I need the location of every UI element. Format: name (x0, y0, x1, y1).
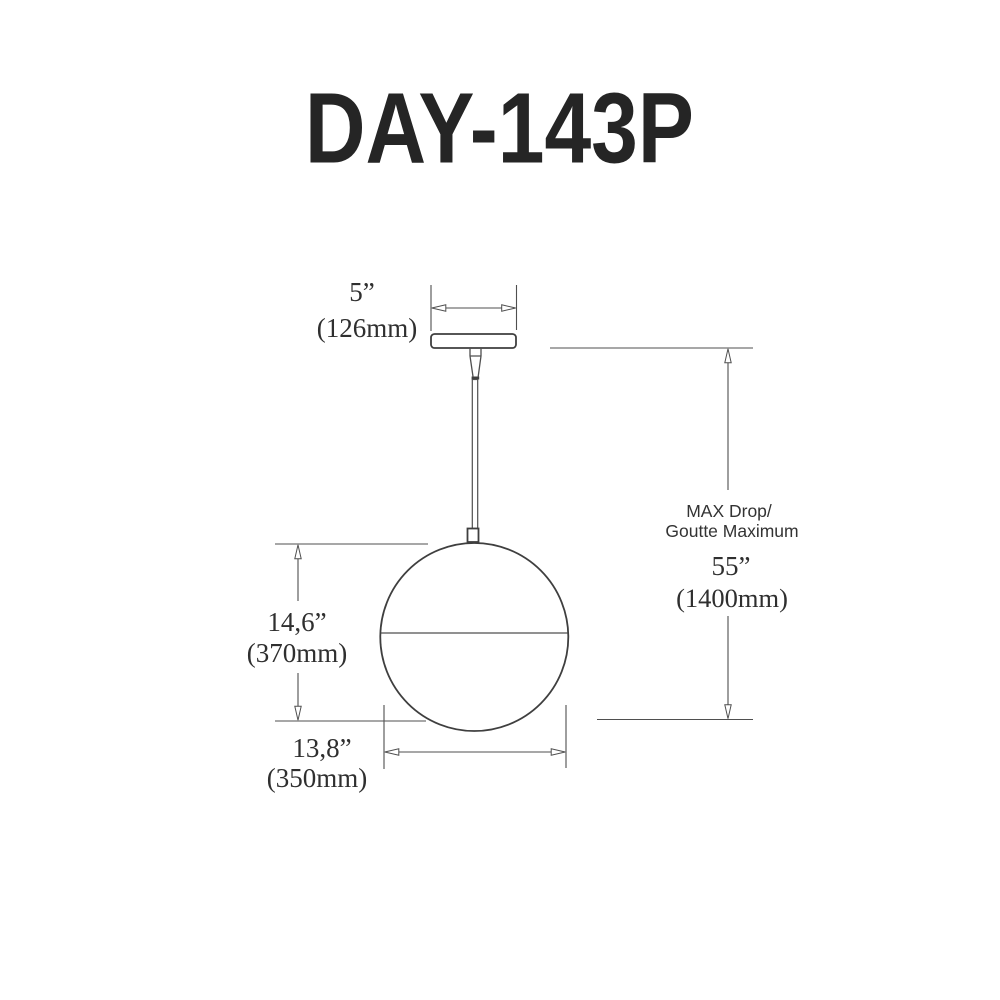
dim-max-drop: MAX Drop/ Goutte Maximum 55” (1400mm) (550, 348, 799, 720)
arrowhead-down-icon (725, 705, 731, 719)
max-drop-label-fr: Goutte Maximum (665, 521, 798, 541)
canopy-width-mm-label: (126mm) (317, 313, 418, 343)
arrowhead-right-icon (502, 305, 516, 311)
stem-socket (470, 348, 482, 380)
diagram-page: DAY-143P 5” (0, 0, 1000, 1000)
arrowhead-up-icon (725, 349, 731, 363)
globe-outline (380, 543, 568, 731)
max-drop-label-en: MAX Drop/ (686, 501, 772, 521)
globe-width-mm-label: (350mm) (267, 763, 368, 793)
globe-height-mm-label: (370mm) (247, 638, 348, 668)
arrowhead-left-icon (385, 749, 399, 755)
arrowhead-up-icon (295, 545, 301, 559)
product-model-title: DAY-143P (305, 72, 694, 185)
arrowhead-down-icon (295, 706, 301, 720)
canopy-width-inches-label: 5” (349, 277, 374, 307)
dimension-diagram: DAY-143P 5” (0, 0, 1000, 1000)
globe-connector (468, 529, 479, 543)
globe-width-inches-label: 13,8” (292, 733, 351, 763)
fixture-drawing (380, 334, 568, 731)
arrowhead-right-icon (551, 749, 565, 755)
canopy-outline (431, 334, 516, 348)
max-drop-inches-label: 55” (712, 551, 751, 581)
socket-upper-outline (470, 348, 482, 356)
stem-rod (472, 380, 477, 529)
arrowhead-left-icon (432, 305, 446, 311)
socket-taper-outline (470, 356, 481, 377)
globe-height-inches-label: 14,6” (267, 607, 326, 637)
max-drop-mm-label: (1400mm) (676, 583, 788, 613)
